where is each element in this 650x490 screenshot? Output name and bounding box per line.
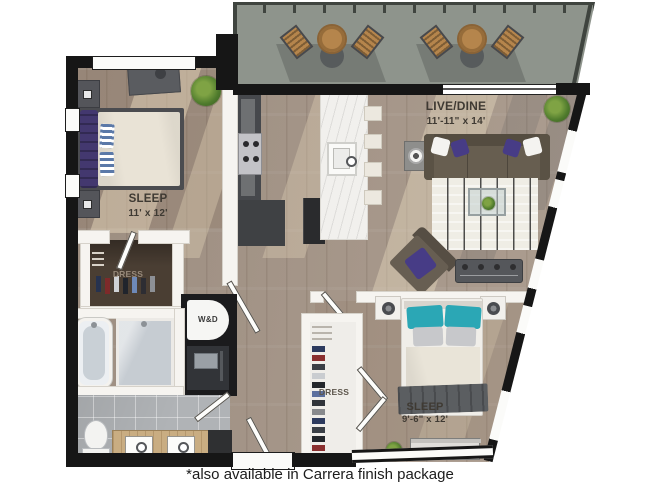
- faucet: [346, 156, 357, 167]
- window: [92, 56, 196, 70]
- sofa: [424, 134, 550, 180]
- closet-shelves: [92, 252, 104, 254]
- range: [238, 133, 262, 175]
- hanging-clothes: [312, 346, 325, 352]
- room-name: SLEEP: [385, 400, 465, 414]
- nightstand-tray: [487, 302, 500, 315]
- room-dimensions: 9'-6" x 12': [385, 414, 465, 426]
- wall: [174, 308, 185, 398]
- stool: [364, 106, 382, 121]
- balcony-railing-right: [571, 2, 593, 88]
- tv-console: [455, 259, 523, 283]
- balcony-railing: [233, 2, 595, 13]
- kitchen-counter-corner: [233, 200, 285, 246]
- sofa-arm: [540, 134, 550, 180]
- nightstand: [375, 296, 401, 320]
- room-name: LIVE/DINE: [394, 99, 518, 115]
- dresser-top: [411, 439, 481, 443]
- bed: [401, 298, 483, 416]
- utility-closet: W&D: [181, 294, 237, 396]
- bed-pillow-teal: [406, 305, 443, 329]
- bathtub: [76, 318, 112, 388]
- coffee-table: [468, 188, 506, 216]
- wall-exterior-bottom: [292, 453, 356, 467]
- room-name: SLEEP: [106, 192, 190, 207]
- nightstand-tray: [83, 200, 92, 209]
- bed-pillow-gray: [413, 326, 444, 346]
- console-line: [460, 275, 518, 276]
- stool: [364, 134, 382, 149]
- floor-plan: DRESS W&D: [0, 0, 650, 490]
- nightstand-tray: [83, 90, 92, 99]
- bed-pillow: [99, 124, 114, 149]
- shower-head: [141, 321, 147, 327]
- wall: [74, 230, 110, 244]
- room-label-live-dine: LIVE/DINE 11'-11" x 14': [394, 99, 518, 128]
- patio-table: [457, 24, 487, 54]
- room-label-dress-2: DRESS: [306, 387, 362, 398]
- linen-storage: [187, 346, 229, 390]
- room-label-sleep-1: SLEEP 11' x 12': [106, 192, 190, 220]
- wall-exterior-bottom: [66, 453, 233, 467]
- room-dimensions: 11'-11" x 14': [394, 115, 518, 128]
- toilet: [84, 420, 108, 450]
- plant: [544, 96, 570, 122]
- patio-table: [317, 24, 347, 54]
- room-dimensions: 11' x 12': [106, 207, 190, 220]
- stool: [364, 162, 382, 177]
- faucet: [136, 442, 147, 453]
- wall: [138, 230, 190, 244]
- sofa-pillow: [502, 138, 522, 158]
- kitchen-sink: [327, 142, 357, 176]
- stool: [364, 190, 382, 205]
- bathtub-basin: [83, 326, 105, 380]
- shower: [116, 318, 174, 388]
- bed-throw: [80, 110, 98, 188]
- bed-pillow-gray: [446, 326, 477, 346]
- bed-pillow-teal: [444, 305, 481, 329]
- bed: [78, 108, 184, 190]
- room-label-dress-1: DRESS: [100, 269, 156, 280]
- lamp: [408, 148, 424, 164]
- nightstand: [480, 296, 506, 320]
- wall-pier: [216, 34, 238, 90]
- balcony: [233, 2, 595, 88]
- console-knobs: [462, 264, 468, 270]
- wall-exterior-top-right: [233, 84, 443, 95]
- plant: [482, 197, 495, 210]
- sofa-pillow: [430, 136, 451, 157]
- wall: [222, 68, 238, 286]
- nightstand-tray: [382, 302, 395, 315]
- range-burners: [243, 141, 249, 147]
- closet-shelves: [312, 326, 332, 328]
- bed-pillow: [100, 152, 115, 176]
- faucet: [178, 442, 189, 453]
- balcony-sliding-door: [443, 84, 561, 95]
- towels: [194, 353, 218, 369]
- window: [65, 108, 80, 132]
- caption: *also available in Carrera finish packag…: [110, 466, 530, 483]
- washer-dryer: W&D: [187, 300, 229, 340]
- storage-shelf: [220, 351, 223, 381]
- tub-faucet: [91, 322, 97, 328]
- window: [65, 174, 80, 198]
- room-label-sleep-2: SLEEP 9'-6" x 12': [385, 400, 465, 427]
